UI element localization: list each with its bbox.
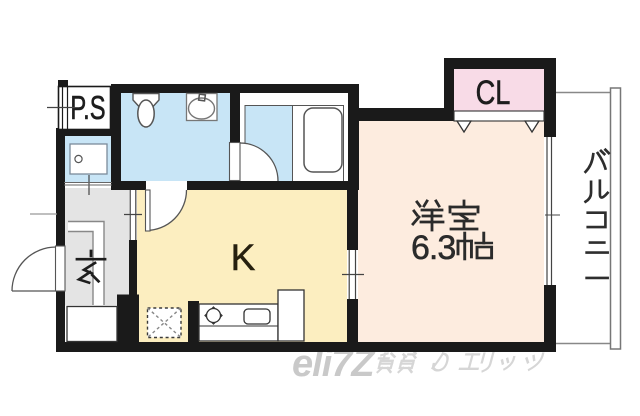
- svg-text:CL: CL: [476, 73, 511, 112]
- svg-text:K: K: [231, 237, 256, 278]
- svg-text:P.S: P.S: [70, 90, 105, 127]
- svg-text:6.3: 6.3: [411, 229, 455, 267]
